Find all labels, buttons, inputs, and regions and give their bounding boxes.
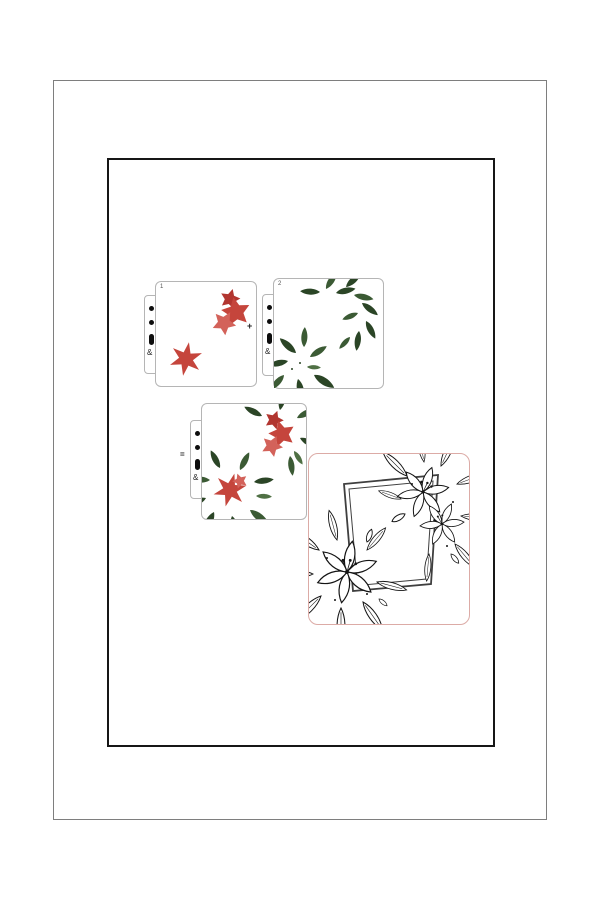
binder-oval-hole xyxy=(195,459,200,470)
binder-hole xyxy=(149,320,154,325)
plus-operator: + xyxy=(247,321,252,331)
stencil-card-2: 2 xyxy=(273,278,384,389)
stencil-card-1: 1 xyxy=(155,281,257,387)
equals-operator: = xyxy=(180,450,185,459)
star-flower-icon xyxy=(169,340,204,379)
binder-hole xyxy=(195,445,200,450)
binder-hole xyxy=(195,431,200,436)
binder-hole xyxy=(149,306,154,311)
stencil-card-result xyxy=(201,403,307,520)
binder-mark: & xyxy=(193,474,198,482)
binder-oval-hole xyxy=(149,334,154,345)
binder-oval-hole xyxy=(267,333,272,344)
leaf-vine-icon xyxy=(300,279,379,351)
binder-hole xyxy=(267,305,272,310)
preview-card xyxy=(308,453,470,625)
flower-cluster-icon xyxy=(209,286,252,337)
flower-leaf-corner-icon xyxy=(244,404,306,476)
combined-flower-art xyxy=(202,404,306,519)
lily-frame-art xyxy=(309,454,469,624)
leaf-stencil-art xyxy=(274,279,383,388)
binder-hole xyxy=(267,319,272,324)
lily-corner-bottom-left-icon xyxy=(309,510,407,624)
lily-corner-top-right-icon xyxy=(378,454,469,581)
leaf-cluster-icon xyxy=(274,327,335,388)
flower-leaf-spray-icon xyxy=(202,449,274,519)
binder-mark: & xyxy=(147,349,152,357)
red-flower-stencil-art xyxy=(156,282,256,386)
binder-mark: & xyxy=(265,348,270,356)
